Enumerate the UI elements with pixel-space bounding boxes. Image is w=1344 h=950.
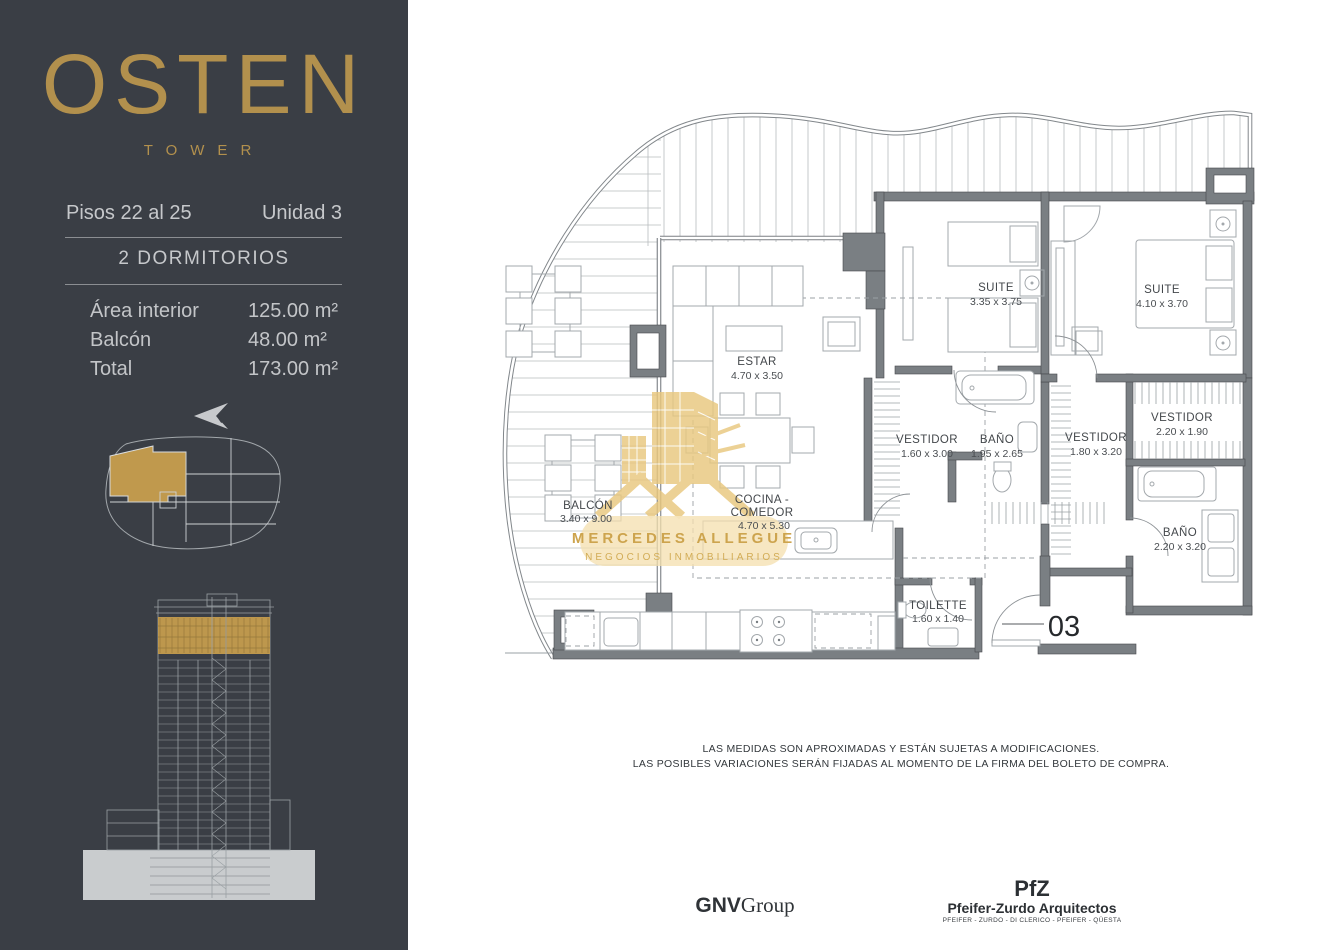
closet-vestidor3-bottom: [1135, 441, 1240, 459]
floors-unit-row: Pisos 22 al 25 Unidad 3: [66, 202, 342, 225]
label-bano2-dims: 2.20 x 3.20: [1154, 541, 1206, 553]
unit-type: 2 DORMITORIOS: [0, 248, 408, 270]
key-plan-highlighted-unit: [110, 446, 186, 502]
label-vestidor2: VESTIDOR: [1065, 432, 1127, 444]
area-value: 48.00 m²: [248, 326, 338, 355]
label-suite2: SUITE: [1144, 284, 1180, 296]
disclaimer-line1: LAS MEDIDAS SON APROXIMADAS Y ESTÁN SUJE…: [550, 742, 1252, 757]
floors-label: Pisos 22 al 25: [66, 202, 192, 225]
suite1-furniture: [903, 222, 1044, 352]
pfz-logo: PfZ Pfeifer-Zurdo Arquitectos PFEIFER - …: [932, 878, 1132, 926]
label-vestidor1: VESTIDOR: [896, 434, 958, 446]
pfz-mark: PfZ: [932, 878, 1132, 900]
brand-sub: TOWER: [0, 142, 408, 159]
gnv-group-logo: GNVGroup: [660, 893, 830, 918]
balcony-deck-hatch-top: [648, 100, 1240, 246]
label-vestidor1-dims: 1.60 x 3.00: [901, 448, 953, 460]
label-balcon-dims: 3.40 x 9.00: [560, 513, 612, 525]
area-label: Total: [90, 355, 248, 384]
label-cocina-dims: 4.70 x 5.30: [738, 520, 790, 532]
label-suite2-dims: 4.10 x 3.70: [1136, 298, 1188, 310]
unit-label: Unidad 3: [262, 202, 342, 225]
label-bano2: BAÑO: [1163, 526, 1197, 539]
building-elevation: [80, 592, 330, 912]
stair-hatch: [992, 502, 1104, 524]
label-bano1-dims: 1.95 x 2.65: [971, 448, 1023, 460]
area-row: Total 173.00 m²: [90, 355, 338, 384]
pfz-name: Pfeifer-Zurdo Arquitectos: [932, 900, 1132, 916]
area-label: Área interior: [90, 297, 248, 326]
label-suite1: SUITE: [978, 282, 1014, 294]
gnv-logo-serif: Group: [741, 893, 795, 917]
label-suite1-dims: 3.35 x 3.75: [970, 296, 1022, 308]
area-label: Balcón: [90, 326, 248, 355]
label-vestidor3-dims: 2.20 x 1.90: [1156, 426, 1208, 438]
label-cocina-line1: COCINA -: [735, 494, 789, 506]
watermark-line1: MERCEDES ALLEGUE: [572, 530, 796, 547]
area-row: Área interior 125.00 m²: [90, 297, 338, 326]
gnv-logo-bold: GNV: [695, 894, 741, 917]
label-estar: ESTAR: [737, 356, 777, 368]
label-toilette: TOILETTE: [909, 600, 967, 612]
bath1-fixtures: [956, 371, 1037, 492]
label-estar-dims: 4.70 x 3.50: [731, 370, 783, 382]
unit-number: 03: [1048, 611, 1080, 643]
pfz-partners: PFEIFER - ZURDO - DI CLERICO - PFEIFER -…: [932, 916, 1132, 926]
label-vestidor2-dims: 1.80 x 3.20: [1070, 446, 1122, 458]
area-value: 125.00 m²: [248, 297, 338, 326]
bath2-fixtures: [1138, 467, 1238, 582]
sidebar: OSTEN TOWER Pisos 22 al 25 Unidad 3 2 DO…: [0, 0, 408, 950]
suite2-furniture: [1051, 206, 1236, 355]
key-plan: [98, 434, 290, 560]
divider: [65, 284, 342, 285]
label-vestidor3: VESTIDOR: [1151, 412, 1213, 424]
area-table: Área interior 125.00 m² Balcón 48.00 m² …: [90, 297, 338, 384]
balcony-furniture: [506, 266, 621, 521]
closet-corridor: [1051, 386, 1071, 554]
watermark-line2: NEGOCIOS INMOBILIARIOS: [585, 552, 783, 563]
label-balcon: BALCÓN: [563, 499, 613, 512]
area-value: 173.00 m²: [248, 355, 338, 384]
closet-vestidor1: [874, 382, 900, 515]
divider: [65, 237, 342, 238]
closet-vestidor3-top: [1135, 382, 1240, 404]
disclaimer: LAS MEDIDAS SON APROXIMADAS Y ESTÁN SUJE…: [550, 742, 1252, 772]
label-toilette-dims: 1.60 x 1.40: [912, 613, 964, 625]
label-bano1: BAÑO: [980, 433, 1014, 446]
area-row: Balcón 48.00 m²: [90, 326, 338, 355]
brand-logo: OSTEN: [0, 36, 408, 133]
north-arrow-icon: N: [192, 400, 232, 430]
disclaimer-line2: LAS POSIBLES VARIACIONES SERÁN FIJADAS A…: [550, 757, 1252, 772]
label-cocina-line2: COMEDOR: [731, 507, 794, 519]
